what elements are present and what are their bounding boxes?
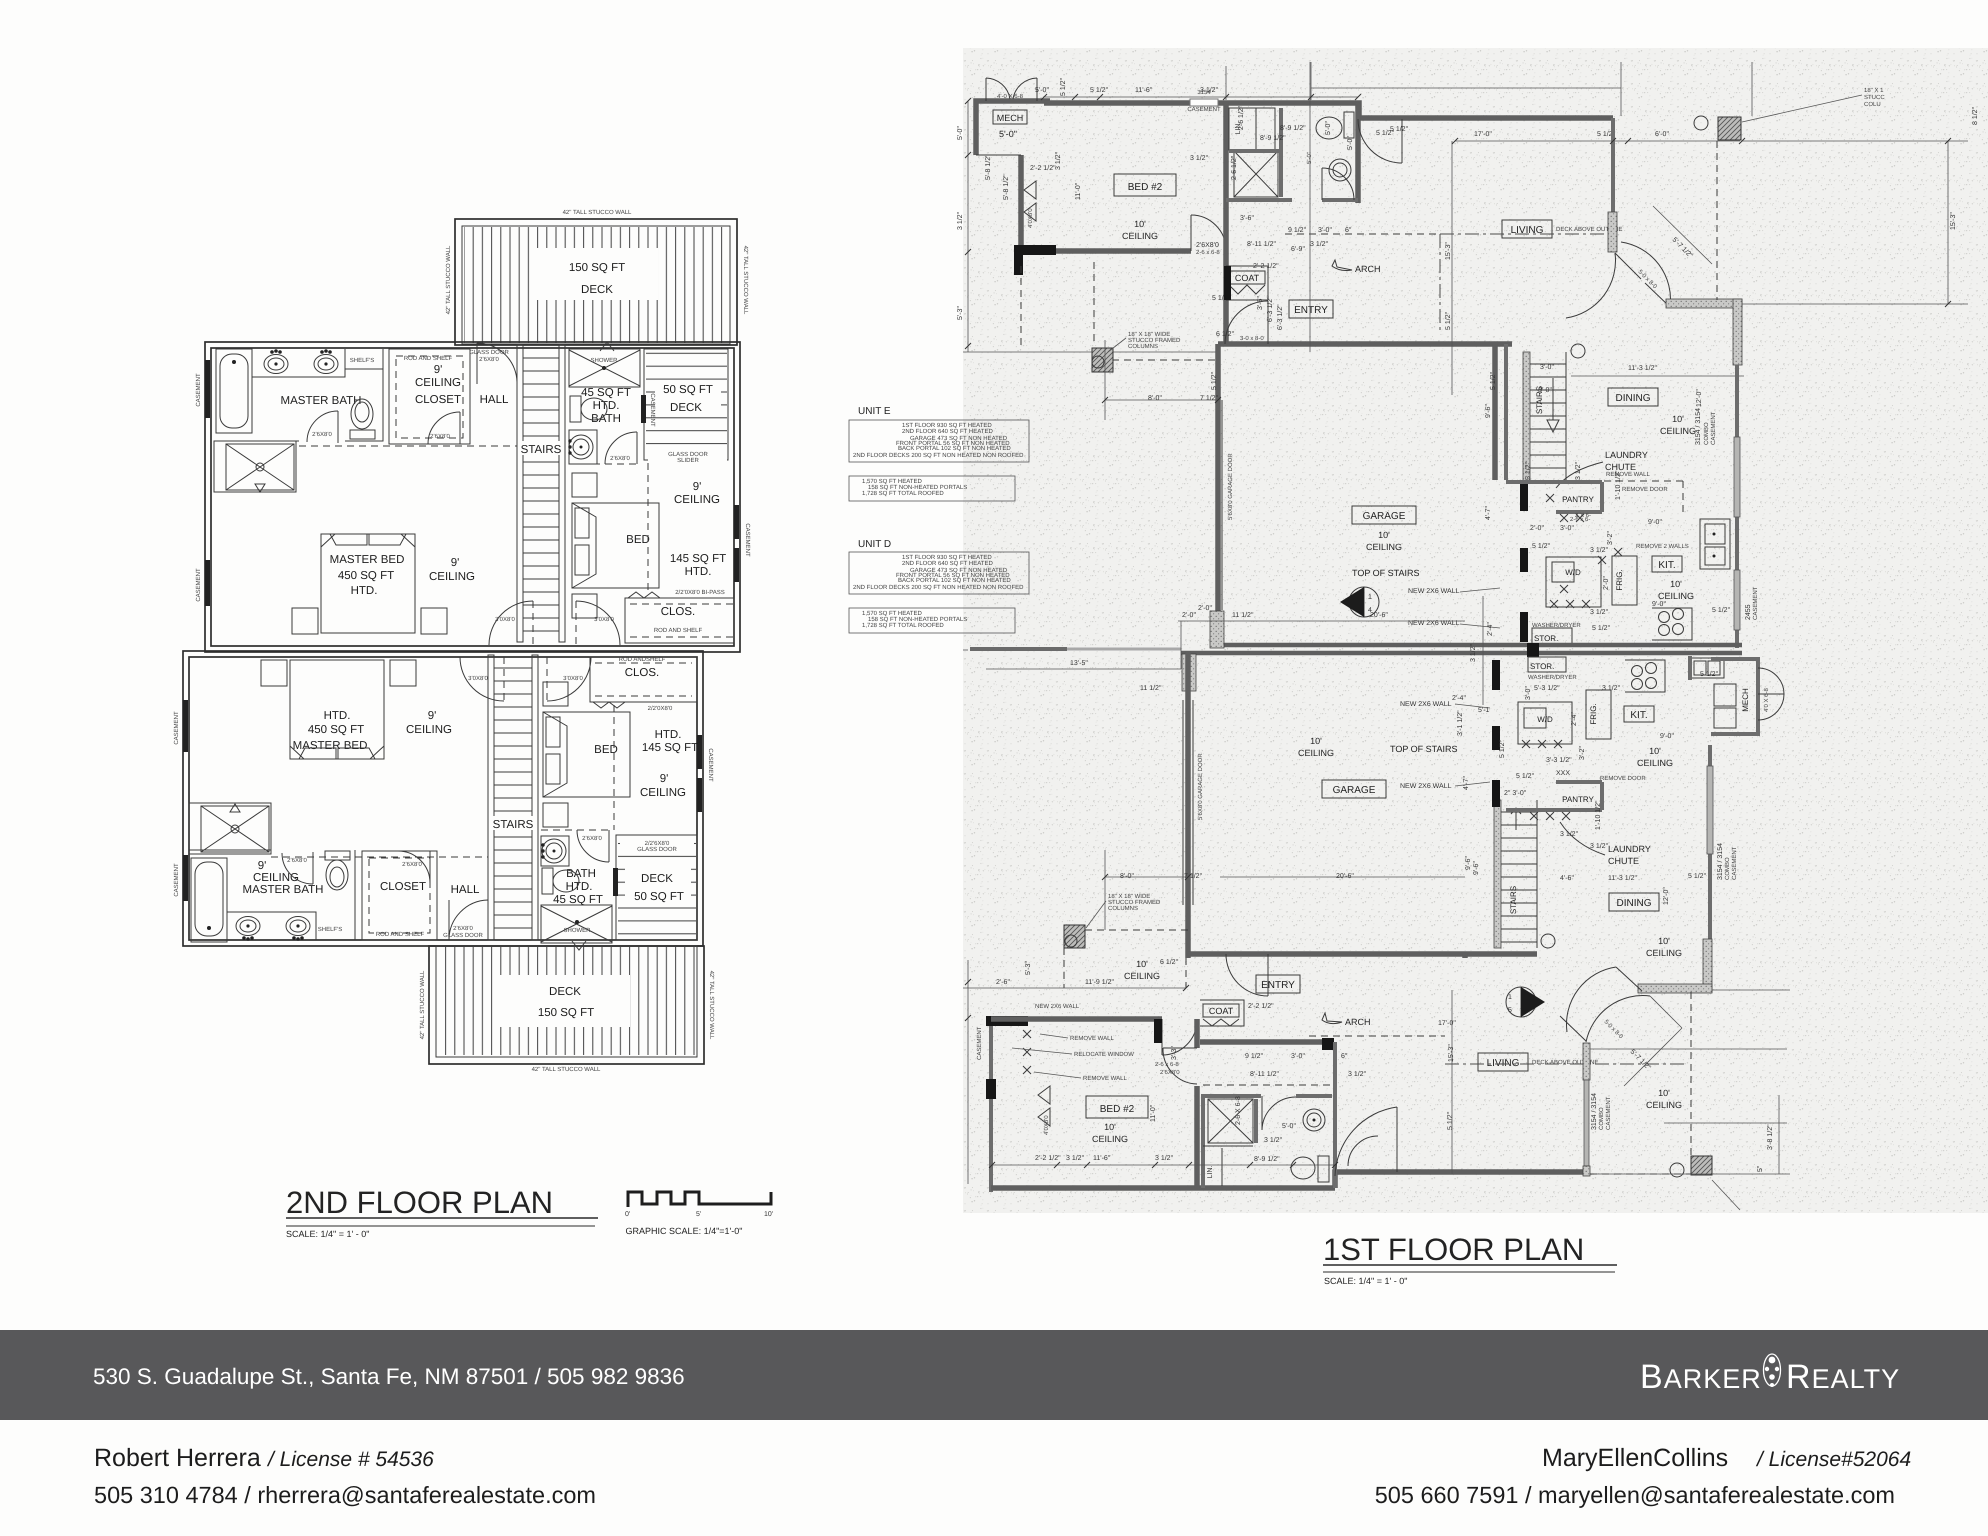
svg-text:REMOVE DOOR: REMOVE DOOR xyxy=(1622,486,1668,493)
svg-text:12'-0": 12'-0" xyxy=(1696,389,1703,407)
svg-text:17'-0": 17'-0" xyxy=(1438,1020,1456,1027)
svg-text:42" TALL STUCCO WALL: 42" TALL STUCCO WALL xyxy=(445,245,452,314)
svg-text:TOP OF STAIRS: TOP OF STAIRS xyxy=(1352,568,1420,578)
svg-text:BACK PORTAL 102 SQ FT NON HEAT: BACK PORTAL 102 SQ FT NON HEATED xyxy=(898,577,1011,584)
svg-text:450 SQ FT: 450 SQ FT xyxy=(308,724,364,736)
svg-text:MaryEllenCollins: MaryEllenCollins xyxy=(1542,1444,1728,1472)
svg-text:ROD ANDSHELF: ROD ANDSHELF xyxy=(619,656,666,663)
svg-text:CLOS.: CLOS. xyxy=(625,667,660,679)
svg-text:6'-3 1/2": 6'-3 1/2" xyxy=(1276,304,1284,330)
svg-text:2'-2 1/2": 2'-2 1/2" xyxy=(1035,1154,1061,1162)
svg-text:9': 9' xyxy=(660,773,669,785)
svg-text:158 SQ FT NON-HEATED PORTALS: 158 SQ FT NON-HEATED PORTALS xyxy=(868,616,967,623)
svg-text:11'-9 1/2": 11'-9 1/2" xyxy=(1085,978,1115,986)
svg-text:10': 10' xyxy=(764,1211,773,1218)
svg-text:2'6X8'0: 2'6X8'0 xyxy=(430,433,450,440)
svg-text:45 SQ FT: 45 SQ FT xyxy=(581,387,631,399)
svg-text:3'-1 1/2": 3'-1 1/2" xyxy=(1456,710,1464,736)
svg-text:2-6 x 6-8: 2-6 x 6-8 xyxy=(1155,1061,1179,1068)
svg-text:5 1/2": 5 1/2" xyxy=(1688,872,1707,880)
svg-text:2'6X8'0: 2'6X8'0 xyxy=(479,356,499,363)
svg-text:CEILING: CEILING xyxy=(1122,231,1158,241)
svg-text:2'6X8'0: 2'6X8'0 xyxy=(312,431,332,438)
svg-text:HTD.: HTD. xyxy=(324,710,351,722)
svg-text:CASEMENT: CASEMENT xyxy=(1710,411,1717,445)
svg-text:CASEMENT: CASEMENT xyxy=(707,748,714,782)
svg-text:SHELF'S: SHELF'S xyxy=(318,926,343,933)
svg-text:STUCCO FRAMED: STUCCO FRAMED xyxy=(1108,899,1161,906)
svg-text:5'-0": 5'-0" xyxy=(1306,152,1313,164)
svg-text:REMOVE WALL: REMOVE WALL xyxy=(1070,1035,1114,1042)
svg-text:CASEMENT: CASEMENT xyxy=(649,393,656,427)
svg-text:5 1/2": 5 1/2" xyxy=(1489,371,1497,390)
svg-text:CHUTE: CHUTE xyxy=(1608,856,1639,866)
svg-text:HALL: HALL xyxy=(480,394,509,406)
svg-text:3 1/2": 3 1/2" xyxy=(1574,461,1582,480)
svg-text:BED #2: BED #2 xyxy=(1128,182,1163,193)
svg-text:10': 10' xyxy=(1658,1088,1670,1098)
svg-text:3 1/2": 3 1/2" xyxy=(1590,842,1609,850)
svg-text:GRAPHIC SCALE: 1/4"=1'-0": GRAPHIC SCALE: 1/4"=1'-0" xyxy=(626,1226,743,1236)
svg-text:3'-0": 3'-0" xyxy=(1538,387,1552,394)
svg-text:REMOVE WALL: REMOVE WALL xyxy=(1606,471,1650,478)
svg-text:6 1/2": 6 1/2" xyxy=(1160,958,1179,966)
svg-text:8'-9 1/2": 8'-9 1/2" xyxy=(1280,124,1306,132)
svg-text:2'6X8'0: 2'6X8'0 xyxy=(582,835,602,842)
svg-text:LAUNDRY: LAUNDRY xyxy=(1605,450,1648,460)
svg-text:STAIRS: STAIRS xyxy=(493,819,534,831)
svg-text:7 1/2": 7 1/2" xyxy=(1200,394,1219,402)
svg-text:3'0X8'0: 3'0X8'0 xyxy=(468,675,488,682)
svg-text:6'-0": 6'-0" xyxy=(1655,131,1669,138)
svg-text:1'-10 1/2": 1'-10 1/2" xyxy=(1614,470,1622,500)
svg-text:2'-2 1/2": 2'-2 1/2" xyxy=(1248,1002,1274,1010)
svg-text:18" X 18" WIDE: 18" X 18" WIDE xyxy=(1108,893,1150,900)
svg-text:9 1/2": 9 1/2" xyxy=(1288,226,1307,234)
svg-text:SLIDER: SLIDER xyxy=(677,457,699,464)
svg-text:CASEMENT: CASEMENT xyxy=(744,523,751,557)
svg-text:5 1/2": 5 1/2" xyxy=(1516,772,1535,780)
svg-text:DECK: DECK xyxy=(549,986,581,998)
svg-text:11'-0": 11'-0" xyxy=(1075,182,1082,200)
svg-text:1,728 SQ FT TOTAL ROOFED: 1,728 SQ FT TOTAL ROOFED xyxy=(862,490,944,497)
svg-text:5'-3": 5'-3" xyxy=(1025,961,1032,975)
svg-text:STOR.: STOR. xyxy=(1530,662,1554,671)
svg-text:145 SQ FT: 145 SQ FT xyxy=(642,742,698,754)
svg-text:HTD.: HTD. xyxy=(351,585,378,597)
svg-text:3 1/2": 3 1/2" xyxy=(1190,154,1209,162)
svg-text:11'-3 1/2": 11'-3 1/2" xyxy=(1628,364,1658,372)
svg-text:REMOVE WALL: REMOVE WALL xyxy=(1083,1075,1127,1082)
svg-text:3'-3 1/2": 3'-3 1/2" xyxy=(1546,756,1572,764)
svg-text:5 1/2": 5 1/2" xyxy=(1712,606,1731,614)
svg-text:2-6 x 6-: 2-6 x 6- xyxy=(1570,516,1590,523)
svg-text:2'-6": 2'-6" xyxy=(996,979,1010,986)
svg-text:2'6X8'0: 2'6X8'0 xyxy=(1196,242,1219,249)
svg-text:150 SQ FT: 150 SQ FT xyxy=(538,1007,594,1019)
svg-text:5 1/2": 5 1/2" xyxy=(1376,129,1395,137)
svg-text:MECH: MECH xyxy=(997,113,1024,123)
svg-text:2'-0": 2'-0" xyxy=(1182,612,1196,619)
svg-text:10': 10' xyxy=(1136,959,1148,969)
svg-text:5': 5' xyxy=(696,1211,701,1218)
svg-text:SHOWER: SHOWER xyxy=(591,357,619,364)
svg-text:20'-6": 20'-6" xyxy=(1336,873,1354,880)
svg-text:UNIT E: UNIT E xyxy=(858,406,891,417)
svg-text:2'-2 1/2": 2'-2 1/2" xyxy=(1030,164,1056,172)
svg-text:3'-6": 3'-6" xyxy=(1240,215,1254,222)
svg-text:CEILING: CEILING xyxy=(415,377,461,389)
svg-text:2'6X8'0: 2'6X8'0 xyxy=(453,925,473,932)
svg-text:2ND FLOOR DECKS 200 SQ FT NON: 2ND FLOOR DECKS 200 SQ FT NON HEATED NON… xyxy=(853,452,1024,459)
svg-text:505 310 4784 / rherrera@santaf: 505 310 4784 / rherrera@santaferealestat… xyxy=(94,1482,596,1508)
svg-text:3 1/2": 3 1/2" xyxy=(1602,684,1621,692)
svg-text:3 1/2": 3 1/2" xyxy=(1310,240,1329,248)
svg-text:17'-0": 17'-0" xyxy=(1474,131,1492,138)
svg-text:2/2'0X8'0: 2/2'0X8'0 xyxy=(648,705,673,712)
svg-text:CEILING: CEILING xyxy=(1298,748,1334,758)
svg-text:2" 3'-0": 2" 3'-0" xyxy=(1504,790,1527,797)
svg-text:GARAGE: GARAGE xyxy=(1333,785,1376,796)
svg-text:8'-11 1/2": 8'-11 1/2" xyxy=(1247,240,1277,248)
svg-text:CEILING: CEILING xyxy=(1660,426,1696,436)
svg-text:10': 10' xyxy=(1104,1122,1116,1132)
svg-text:3154 / 3154: 3154 / 3154 xyxy=(1590,1093,1598,1130)
svg-text:2/2'6X8'0: 2/2'6X8'0 xyxy=(645,840,670,847)
svg-text:42" TALL STUCCO WALL: 42" TALL STUCCO WALL xyxy=(708,971,715,1040)
svg-text:REALTY: REALTY xyxy=(1786,1358,1900,1396)
svg-text:COMBO: COMBO xyxy=(1598,1107,1605,1130)
svg-text:5 1/2": 5 1/2" xyxy=(1498,739,1506,758)
svg-text:3'-0": 3'-0" xyxy=(1318,227,1332,234)
svg-text:2-6 1/2": 2-6 1/2" xyxy=(1237,105,1245,130)
svg-text:CASEMENT: CASEMENT xyxy=(195,373,202,407)
svg-text:5 1/2": 5 1/2" xyxy=(1524,461,1532,480)
svg-text:CASEMENT: CASEMENT xyxy=(173,711,180,745)
svg-text:GLASS DOOR: GLASS DOOR xyxy=(637,846,677,853)
svg-text:1,728 SQ FT TOTAL ROOFED: 1,728 SQ FT TOTAL ROOFED xyxy=(862,622,944,629)
svg-text:REMOVE 2 WALLS: REMOVE 2 WALLS xyxy=(1636,543,1689,550)
svg-text:11'-0": 11'-0" xyxy=(1150,1104,1157,1122)
svg-text:TOP OF STAIRS: TOP OF STAIRS xyxy=(1390,744,1458,754)
svg-text:DECK: DECK xyxy=(581,284,613,296)
svg-text:5'-1: 5'-1 xyxy=(1478,707,1490,714)
svg-text:1ST FLOOR PLAN: 1ST FLOOR PLAN xyxy=(1323,1232,1584,1267)
svg-text:STAIRS: STAIRS xyxy=(521,444,562,456)
svg-text:8 1/2": 8 1/2" xyxy=(1971,106,1979,125)
svg-text:10': 10' xyxy=(1649,746,1661,756)
svg-text:GLASS DOOR: GLASS DOOR xyxy=(668,451,708,458)
svg-text:4'-7": 4'-7" xyxy=(1485,506,1492,520)
svg-text:158 SQ FT NON-HEATED PORTALS: 158 SQ FT NON-HEATED PORTALS xyxy=(868,484,967,491)
svg-text:10': 10' xyxy=(1672,414,1684,424)
svg-text:DINING: DINING xyxy=(1617,898,1652,909)
svg-text:10': 10' xyxy=(1378,530,1390,540)
svg-text:4'-7": 4'-7" xyxy=(1463,776,1470,790)
svg-text:3'-3": 3'-3" xyxy=(1171,1046,1178,1060)
svg-text:BATH: BATH xyxy=(591,413,621,425)
svg-text:DECK: DECK xyxy=(670,402,702,414)
svg-text:50 SQ FT: 50 SQ FT xyxy=(663,384,713,396)
svg-text:3 1/2": 3 1/2" xyxy=(1469,643,1477,662)
svg-text:2'6X8'0: 2'6X8'0 xyxy=(402,861,422,868)
svg-text:2'-0": 2'-0" xyxy=(1530,525,1544,532)
svg-text:NEW 2X6 WALL: NEW 2X6 WALL xyxy=(1408,588,1460,595)
svg-text:3 1/2": 3 1/2" xyxy=(1590,608,1609,616)
svg-text:DECK: DECK xyxy=(641,873,673,885)
svg-text:2ND FLOOR 640 SQ FT HEATED: 2ND FLOOR 640 SQ FT HEATED xyxy=(902,428,993,435)
svg-text:NEW 2X6 WALL: NEW 2X6 WALL xyxy=(1035,1003,1080,1010)
svg-text:50 SQ FT: 50 SQ FT xyxy=(634,891,684,903)
svg-text:3'-0": 3'-0" xyxy=(1540,364,1554,371)
svg-text:3'-0": 3'-0" xyxy=(1525,686,1532,700)
svg-text:11'-3 1/2": 11'-3 1/2" xyxy=(1608,874,1638,882)
svg-text:1: 1 xyxy=(1368,594,1372,601)
svg-text:530 S. Guadalupe St., Santa Fe: 530 S. Guadalupe St., Santa Fe, NM 87501… xyxy=(93,1364,685,1389)
svg-text:Robert Herrera: Robert Herrera xyxy=(94,1444,261,1472)
svg-text:3 1/2": 3 1/2" xyxy=(1200,86,1219,94)
svg-text:5 1/2": 5 1/2" xyxy=(1210,371,1218,390)
svg-text:11'-6": 11'-6" xyxy=(1093,1155,1111,1162)
svg-text:1ST FLOOR 930 SQ FT HEATED: 1ST FLOOR 930 SQ FT HEATED xyxy=(902,554,992,561)
svg-text:ARCH: ARCH xyxy=(1355,264,1381,274)
svg-text:3'0X8'0: 3'0X8'0 xyxy=(563,675,583,682)
svg-text:CLOSET: CLOSET xyxy=(415,394,461,406)
svg-text:11 1/2": 11 1/2" xyxy=(1232,611,1254,619)
svg-text:9'-0": 9'-0" xyxy=(1648,519,1662,526)
svg-text:CASEMENT: CASEMENT xyxy=(173,863,180,897)
svg-text:2/2'0X8'0 BI-PASS: 2/2'0X8'0 BI-PASS xyxy=(675,589,725,596)
svg-text:BATH: BATH xyxy=(566,868,596,880)
svg-text:LIN.: LIN. xyxy=(1207,1166,1214,1179)
svg-text:450 SQ FT: 450 SQ FT xyxy=(338,570,394,582)
svg-text:9': 9' xyxy=(451,557,460,569)
svg-text:W/D: W/D xyxy=(1565,568,1581,577)
svg-text:UNIT D: UNIT D xyxy=(858,539,891,550)
svg-text:DINING: DINING xyxy=(1616,393,1651,404)
svg-text:5: 5 xyxy=(1508,1007,1512,1014)
svg-text:1: 1 xyxy=(1508,994,1512,1001)
svg-text:5 1/2": 5 1/2" xyxy=(1444,311,1452,330)
svg-text:145 SQ FT: 145 SQ FT xyxy=(670,553,726,565)
svg-text:5'-0": 5'-0" xyxy=(1325,121,1332,135)
svg-text:10': 10' xyxy=(1134,219,1146,229)
svg-text:FRIG.: FRIG. xyxy=(1589,703,1598,724)
svg-text:CASEMENT: CASEMENT xyxy=(1731,846,1738,880)
svg-text:STUCC: STUCC xyxy=(1864,94,1885,101)
svg-text:3'-2": 3'-2" xyxy=(1607,531,1614,545)
svg-text:5'-0": 5'-0" xyxy=(957,126,964,140)
svg-text:ROD AND SHELF: ROD AND SHELF xyxy=(654,627,703,634)
svg-text:CEILING: CEILING xyxy=(1646,948,1682,958)
svg-text:10': 10' xyxy=(1670,579,1682,589)
svg-text:KIT.: KIT. xyxy=(1658,560,1675,571)
svg-text:9'-0": 9'-0" xyxy=(1652,601,1666,608)
svg-text:CEILING: CEILING xyxy=(1646,1100,1682,1110)
svg-text:9'-0": 9'-0" xyxy=(1660,733,1674,740)
svg-text:5 1/2": 5 1/2" xyxy=(1059,77,1067,96)
svg-text:5'-3": 5'-3" xyxy=(957,306,964,320)
svg-text:150 SQ FT: 150 SQ FT xyxy=(569,262,625,274)
svg-text:NEW 2X6 WALL: NEW 2X6 WALL xyxy=(1400,783,1452,790)
svg-text:KIT.: KIT. xyxy=(1630,710,1647,721)
svg-text:2'6X8'0: 2'6X8'0 xyxy=(287,857,307,864)
svg-text:3 1/2": 3 1/2" xyxy=(1590,546,1609,554)
svg-text:SCALE: 1/4" = 1' - 0": SCALE: 1/4" = 1' - 0" xyxy=(286,1229,369,1239)
svg-text:3'0X8'0: 3'0X8'0 xyxy=(594,616,614,623)
svg-text:CLOSET: CLOSET xyxy=(380,881,426,893)
svg-text:9': 9' xyxy=(693,481,702,493)
svg-text:8'-0": 8'-0" xyxy=(1148,395,1162,402)
svg-text:SCALE: 1/4" = 1' - 0": SCALE: 1/4" = 1' - 0" xyxy=(1324,1276,1407,1286)
svg-text:ENTRY: ENTRY xyxy=(1261,980,1295,991)
svg-text:5'6X8'0 GARAGE DOOR: 5'6X8'0 GARAGE DOOR xyxy=(1227,453,1234,520)
svg-text:4'0 X 6-8: 4'0 X 6-8 xyxy=(1763,688,1770,712)
svg-text:WASHER/DRYER: WASHER/DRYER xyxy=(1532,622,1581,629)
svg-text:STOR.: STOR. xyxy=(1534,634,1558,643)
svg-text:9'-6": 9'-6" xyxy=(1485,404,1492,418)
svg-text:2455: 2455 xyxy=(1745,604,1752,620)
svg-text:9'-6": 9'-6" xyxy=(1465,856,1472,870)
svg-text:5'-0": 5'-0" xyxy=(1035,87,1049,94)
svg-text:505 660 7591 / maryellen@santa: 505 660 7591 / maryellen@santaferealesta… xyxy=(1375,1482,1895,1508)
svg-text:8'-0": 8'-0" xyxy=(1120,873,1134,880)
svg-text:CEILING: CEILING xyxy=(429,571,475,583)
svg-text:3'-6": 3'-6" xyxy=(1257,296,1264,310)
svg-text:15'-3": 15'-3" xyxy=(1448,1044,1455,1062)
svg-text:CEILING: CEILING xyxy=(640,787,686,799)
svg-text:4'-0 X 6-8: 4'-0 X 6-8 xyxy=(997,93,1023,100)
svg-text:11'-6": 11'-6" xyxy=(1135,87,1153,94)
svg-text:42" TALL STUCCO WALL: 42" TALL STUCCO WALL xyxy=(532,1066,601,1073)
svg-text:5'-8 1/2": 5'-8 1/2" xyxy=(1002,174,1010,200)
svg-text:MASTER BED: MASTER BED xyxy=(330,554,405,566)
svg-text:6": 6" xyxy=(1341,1053,1348,1060)
svg-text:3 1/2": 3 1/2" xyxy=(1560,830,1579,838)
svg-text:2'6X8'0: 2'6X8'0 xyxy=(610,455,630,462)
svg-text:8'-9 1/2": 8'-9 1/2" xyxy=(1254,1155,1280,1163)
svg-text:5'-0": 5'-0" xyxy=(999,129,1017,139)
svg-text:2'-4": 2'-4" xyxy=(1571,712,1578,726)
svg-text:MECH: MECH xyxy=(1741,688,1750,712)
svg-text:CASEMENT: CASEMENT xyxy=(195,568,202,602)
svg-text:2ND FLOOR DECKS 200 SQ FT NON: 2ND FLOOR DECKS 200 SQ FT NON HEATED NON… xyxy=(853,584,1024,591)
svg-text:ROD AND SHELF: ROD AND SHELF xyxy=(404,355,453,362)
svg-text:6'-9": 6'-9" xyxy=(1291,246,1305,253)
svg-text:10': 10' xyxy=(1310,736,1322,746)
svg-text:4'0X8'0: 4'0X8'0 xyxy=(1043,1115,1050,1135)
svg-text:45 SQ FT: 45 SQ FT xyxy=(553,894,603,906)
svg-text:STAIRS: STAIRS xyxy=(1509,886,1518,914)
svg-text:15'-3": 15'-3" xyxy=(1950,212,1957,230)
svg-text:/ License # 54536: / License # 54536 xyxy=(266,1448,434,1471)
svg-text:1'-10 1/2": 1'-10 1/2" xyxy=(1594,800,1602,830)
svg-text:HALL: HALL xyxy=(451,884,480,896)
svg-text:3'-8 1/2": 3'-8 1/2" xyxy=(1766,1124,1774,1150)
svg-text:CEILING: CEILING xyxy=(1092,1134,1128,1144)
svg-text:8'-11 1/2": 8'-11 1/2" xyxy=(1250,1070,1280,1078)
svg-text:2ND FLOOR 640 SQ FT HEATED: 2ND FLOOR 640 SQ FT HEATED xyxy=(902,560,993,567)
svg-text:COLUMNS: COLUMNS xyxy=(1108,905,1138,912)
svg-text:5'-0": 5'-0" xyxy=(1282,1123,1296,1130)
svg-text:ENTRY: ENTRY xyxy=(1294,305,1328,316)
svg-text:HTD.: HTD. xyxy=(685,566,712,578)
svg-text:BARKER: BARKER xyxy=(1640,1358,1762,1396)
svg-text:20'-6": 20'-6" xyxy=(1370,612,1388,619)
svg-text:WASHER/DRYER: WASHER/DRYER xyxy=(1528,674,1577,681)
svg-text:CASEMENT: CASEMENT xyxy=(1187,106,1221,113)
svg-text:3 1/2": 3 1/2" xyxy=(1264,1136,1283,1144)
svg-text:5 1/2": 5 1/2" xyxy=(1090,86,1109,94)
svg-text:5'-8 1/2": 5'-8 1/2" xyxy=(984,154,992,180)
svg-text:BACK PORTAL 102 SQ FT NON HEAT: BACK PORTAL 102 SQ FT NON HEATED xyxy=(898,445,1011,452)
svg-text:13'-5": 13'-5" xyxy=(1070,660,1088,667)
svg-text:9'-6": 9'-6" xyxy=(1473,861,1480,875)
svg-text:CLOS.: CLOS. xyxy=(661,606,696,618)
svg-text:4'0X8'0: 4'0X8'0 xyxy=(1027,208,1034,228)
svg-text:COMBO: COMBO xyxy=(1724,857,1731,880)
svg-text:RELOCATE WINDOW: RELOCATE WINDOW xyxy=(1074,1051,1134,1058)
svg-text:CEILING: CEILING xyxy=(1366,542,1402,552)
svg-text:ARCH: ARCH xyxy=(1345,1017,1371,1027)
svg-text:2'6X8'0: 2'6X8'0 xyxy=(1160,1069,1180,1076)
svg-text:18" X 18" WIDE: 18" X 18" WIDE xyxy=(1128,331,1170,338)
svg-text:ROD AND SHELF: ROD AND SHELF xyxy=(376,931,425,938)
svg-text:5 1/2": 5 1/2" xyxy=(1532,542,1551,550)
svg-text:10': 10' xyxy=(1658,936,1670,946)
svg-text:GLASS DOOR: GLASS DOOR xyxy=(469,349,509,356)
svg-text:42" TALL STUCCO WALL: 42" TALL STUCCO WALL xyxy=(742,246,749,315)
svg-text:COAT: COAT xyxy=(1209,1006,1234,1016)
svg-text:0': 0' xyxy=(625,1211,630,1218)
svg-text:9': 9' xyxy=(428,710,437,722)
svg-text:3154 / 3154: 3154 / 3154 xyxy=(1694,408,1702,445)
svg-text:W/D: W/D xyxy=(1537,715,1553,724)
svg-text:5 1/2": 5 1/2" xyxy=(1700,670,1719,678)
svg-text:9': 9' xyxy=(434,364,443,376)
svg-text:5'-0": 5'-0" xyxy=(1347,136,1354,150)
svg-text:HTD.: HTD. xyxy=(593,400,620,412)
svg-text:3'0X8'0: 3'0X8'0 xyxy=(495,616,515,623)
svg-text:2-6 x 6-8: 2-6 x 6-8 xyxy=(1196,249,1220,256)
svg-text:STUCCO FRAMED: STUCCO FRAMED xyxy=(1128,337,1181,344)
svg-text:1,570 SQ FT HEATED: 1,570 SQ FT HEATED xyxy=(862,610,922,617)
svg-text:CEILING: CEILING xyxy=(1124,971,1160,981)
svg-text:5'-3 1/2": 5'-3 1/2" xyxy=(1534,684,1560,692)
svg-text:12'-0": 12'-0" xyxy=(1663,887,1670,905)
svg-text:5": 5" xyxy=(1757,1165,1764,1172)
svg-text:5 1/2": 5 1/2" xyxy=(1446,1111,1454,1130)
svg-text:SHELF'S: SHELF'S xyxy=(350,357,375,364)
svg-text:3 1/2": 3 1/2" xyxy=(1066,1154,1085,1162)
svg-text:2-6 X 6-8: 2-6 X 6-8 xyxy=(1235,1096,1242,1125)
svg-text:COLUMNS: COLUMNS xyxy=(1128,343,1158,350)
svg-text:PANTRY: PANTRY xyxy=(1562,495,1594,504)
svg-text:SHOWER: SHOWER xyxy=(564,927,592,934)
svg-text:6": 6" xyxy=(1345,227,1352,234)
svg-text:2'-4": 2'-4" xyxy=(1487,622,1494,636)
svg-text:XXX: XXX xyxy=(1556,770,1570,777)
svg-text:5 1/2": 5 1/2" xyxy=(1592,624,1611,632)
svg-text:COLU: COLU xyxy=(1864,101,1881,108)
svg-text:3-0 x 8-0: 3-0 x 8-0 xyxy=(1240,335,1264,342)
svg-text:1ST FLOOR 930 SQ FT HEATED: 1ST FLOOR 930 SQ FT HEATED xyxy=(902,422,992,429)
svg-text:CEILING: CEILING xyxy=(406,724,452,736)
svg-text:9 1/2": 9 1/2" xyxy=(1245,1052,1264,1060)
svg-text:CASEMENT: CASEMENT xyxy=(1752,586,1759,620)
svg-text:CEILING: CEILING xyxy=(674,494,720,506)
svg-text:CASEMENT: CASEMENT xyxy=(976,1026,983,1060)
